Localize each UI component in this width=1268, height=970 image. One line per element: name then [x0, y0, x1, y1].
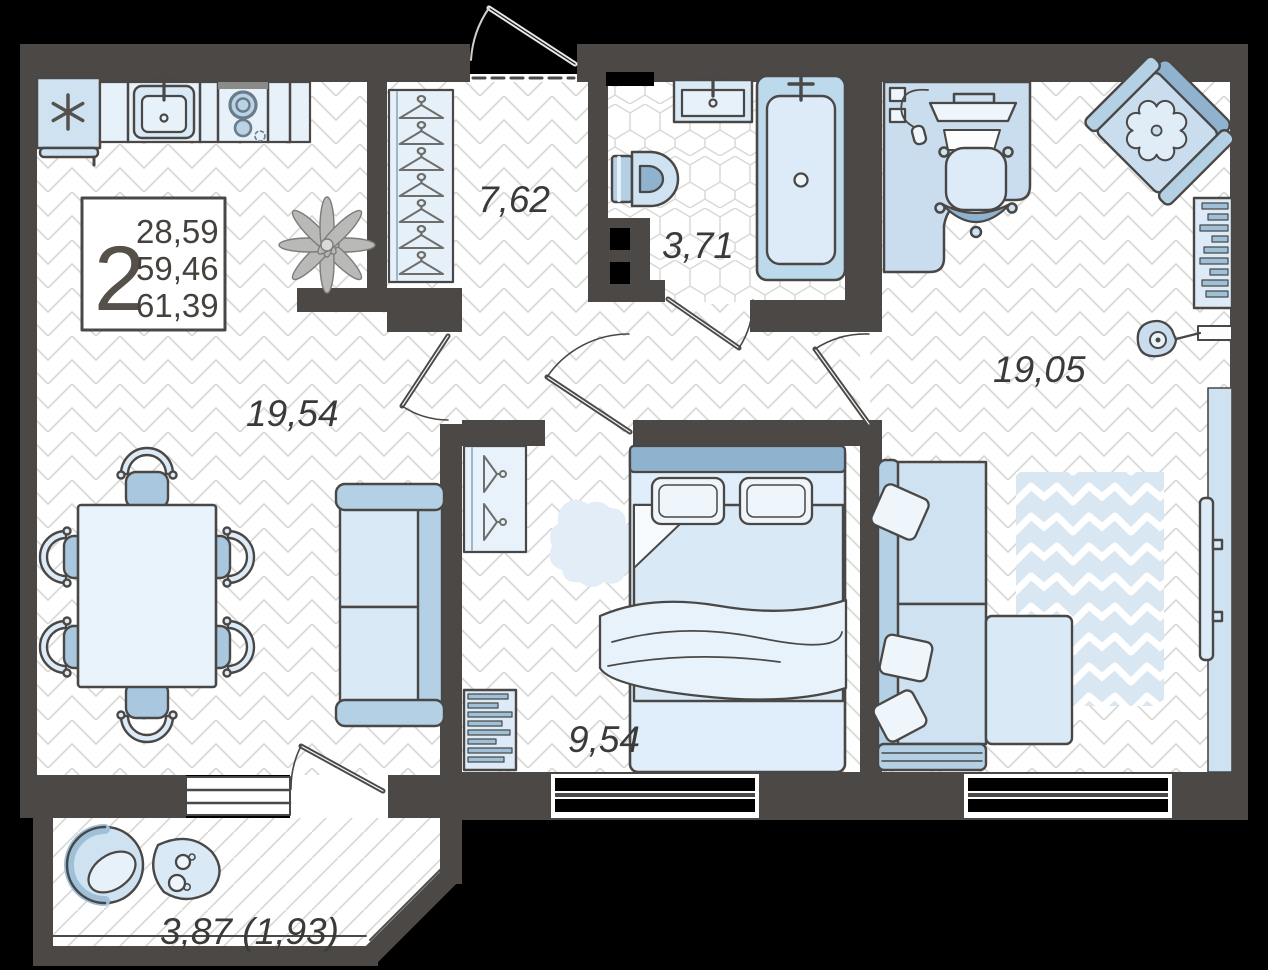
- living-sofa: [336, 484, 444, 726]
- vent-shaft-top: [606, 72, 654, 86]
- floor-plan-canvas: 2 28,59 59,46 61,39: [0, 0, 1268, 970]
- wall-bathtub-right: [845, 44, 882, 332]
- hallway-area-label: 7,62: [478, 179, 550, 220]
- wall-bedroom-top-left: [462, 420, 545, 446]
- bathroom-area-label: 3,71: [662, 225, 734, 266]
- wall-left: [20, 44, 37, 800]
- drain: [161, 115, 168, 122]
- monitor-stand: [954, 94, 994, 103]
- monitor: [930, 103, 1016, 121]
- wall-living-jut: [297, 288, 387, 312]
- wall-bedroom-top-right: [633, 420, 862, 446]
- egg-chair: [67, 827, 143, 903]
- room-window: [964, 774, 1172, 818]
- vent-shaft: [610, 228, 630, 250]
- room-area-label: 19,05: [993, 349, 1086, 390]
- clothes-rack: [464, 446, 526, 552]
- sofa-backrest: [416, 492, 442, 722]
- dining-table: [78, 505, 216, 687]
- bookshelf: [1194, 198, 1232, 308]
- sofa-armrest: [336, 484, 444, 510]
- corner-sofa-slats: [878, 744, 986, 770]
- entrance-door: [470, 8, 577, 82]
- wall-top-left: [20, 44, 470, 82]
- balcony-threshold: [290, 775, 388, 818]
- cup: [169, 875, 185, 891]
- plant: [279, 197, 375, 293]
- vent-shaft: [610, 262, 630, 284]
- corner-sofa-chaise: [986, 616, 1072, 744]
- living-room-area-label: 19,54: [246, 393, 339, 434]
- bathtub: [757, 70, 845, 280]
- legend-area-living: 28,59: [136, 213, 219, 250]
- floor-plan: 2 28,59 59,46 61,39: [0, 0, 1268, 970]
- wall-balcony-left: [33, 818, 53, 952]
- cup: [176, 855, 190, 869]
- wall-hall-corner: [387, 288, 462, 332]
- legend-area-total: 59,46: [136, 250, 219, 287]
- wardrobe: [389, 90, 453, 282]
- legend-box: 2 28,59 59,46 61,39: [82, 198, 225, 330]
- balcony-block-window: [186, 777, 290, 815]
- bedroom-window: [551, 774, 759, 818]
- wall-wardrobe: [367, 82, 387, 290]
- toilet: [612, 152, 678, 206]
- headboard: [630, 446, 845, 472]
- bedroom-area-label: 9,54: [568, 719, 640, 760]
- pillow: [878, 633, 933, 682]
- blanket: [600, 600, 846, 700]
- fridge: [37, 78, 100, 165]
- sofa-armrest: [336, 700, 444, 726]
- radiator-shelf: [464, 690, 516, 770]
- wall-living-bottom-left: [20, 775, 186, 818]
- balcony-area-label: 3,87 (1,93): [160, 911, 339, 952]
- drain: [795, 174, 808, 187]
- drain: [710, 100, 717, 107]
- legend-area-total-coeff: 61,39: [136, 287, 219, 324]
- kitchen-counter: [100, 82, 310, 142]
